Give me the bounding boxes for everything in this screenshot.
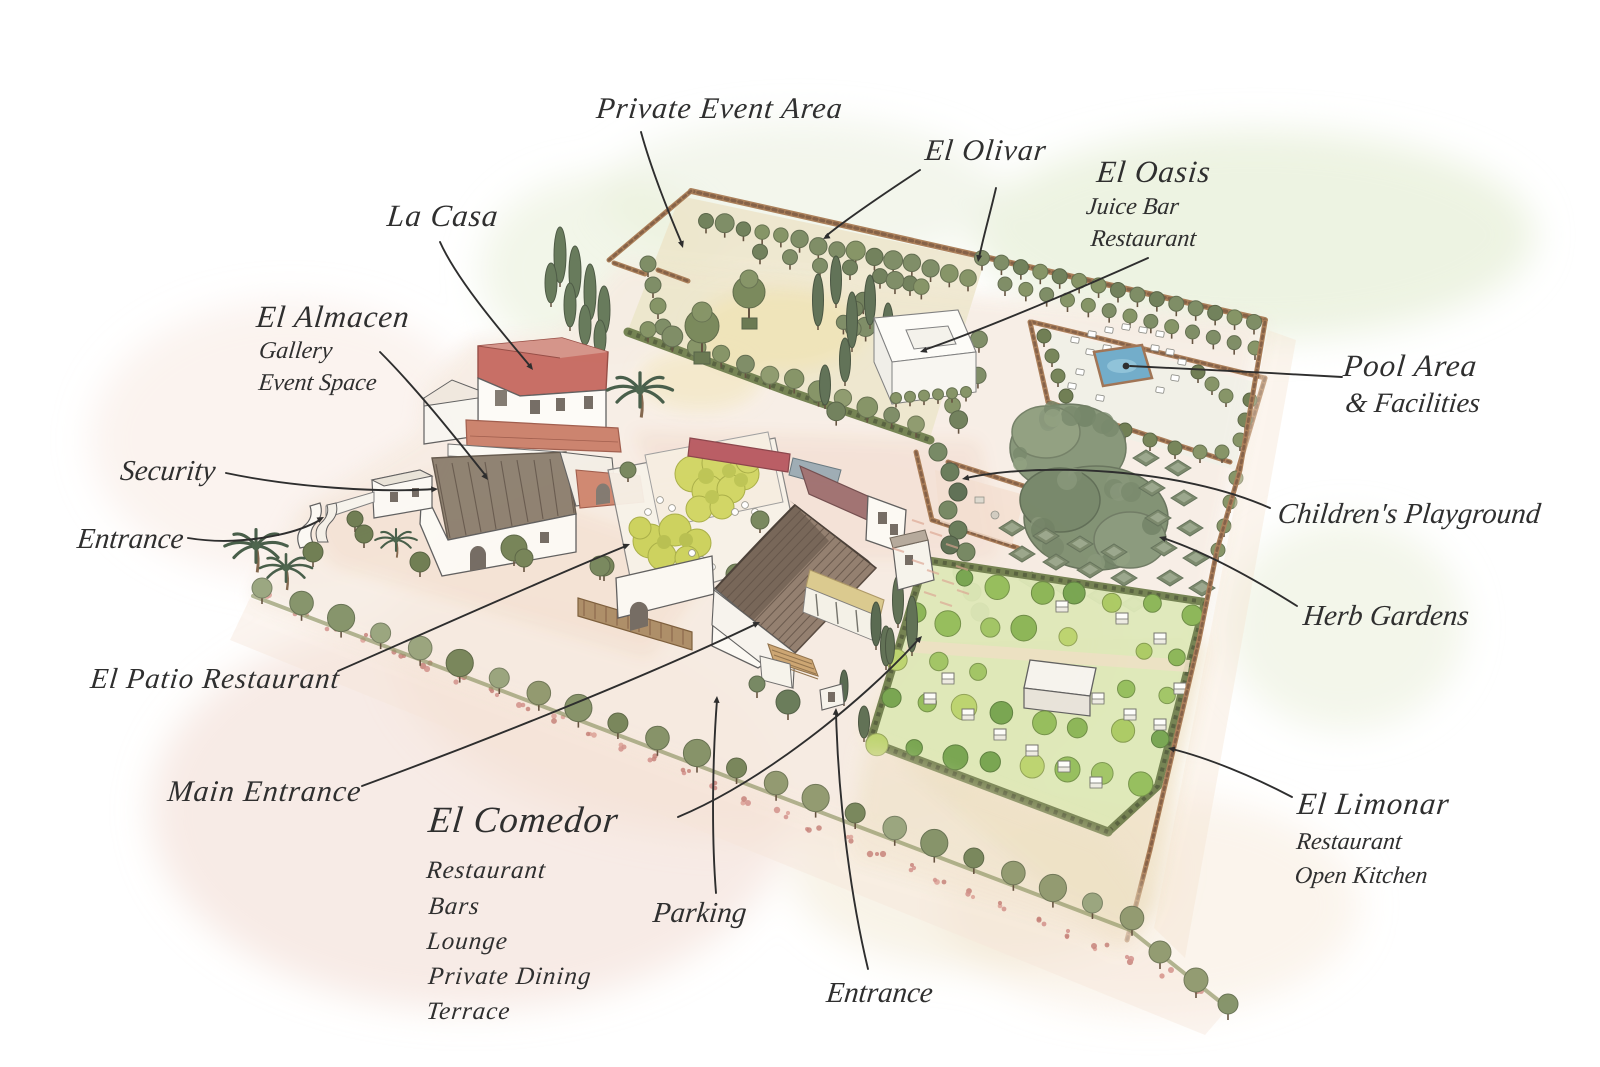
svg-text:Bars: Bars: [427, 893, 481, 920]
svg-text:Pool Area: Pool Area: [1341, 348, 1479, 383]
svg-text:El Limonar: El Limonar: [1295, 786, 1452, 821]
svg-text:Entrance: Entrance: [824, 977, 935, 1009]
svg-text:Gallery: Gallery: [258, 338, 334, 364]
svg-text:El Oasis: El Oasis: [1094, 154, 1213, 189]
svg-text:Terrace: Terrace: [425, 998, 512, 1025]
svg-text:Restaurant: Restaurant: [1089, 226, 1199, 252]
svg-text:Restaurant: Restaurant: [424, 857, 547, 884]
svg-text:Entrance: Entrance: [75, 523, 186, 555]
svg-text:Private Dining: Private Dining: [426, 963, 593, 990]
svg-text:El Almacen: El Almacen: [254, 299, 412, 334]
svg-text:Lounge: Lounge: [425, 928, 510, 955]
svg-text:Parking: Parking: [650, 897, 748, 929]
svg-text:& Facilities: & Facilities: [1344, 388, 1482, 419]
svg-text:Private Event Area: Private Event Area: [594, 91, 845, 125]
svg-text:Herb Gardens: Herb Gardens: [1301, 600, 1471, 632]
svg-text:El Patio Restaurant: El Patio Restaurant: [88, 663, 342, 695]
svg-text:Event Space: Event Space: [256, 370, 378, 396]
svg-text:El Olivar: El Olivar: [922, 133, 1048, 167]
svg-text:El Comedor: El Comedor: [426, 800, 621, 841]
svg-text:Children's Playground: Children's Playground: [1276, 498, 1542, 530]
svg-text:Open Kitchen: Open Kitchen: [1294, 863, 1429, 889]
svg-text:Restaurant: Restaurant: [1294, 829, 1404, 855]
svg-text:Main Entrance: Main Entrance: [165, 774, 363, 808]
svg-text:Security: Security: [119, 455, 217, 487]
svg-text:La Casa: La Casa: [385, 198, 501, 233]
svg-text:Juice Bar: Juice Bar: [1085, 194, 1181, 220]
